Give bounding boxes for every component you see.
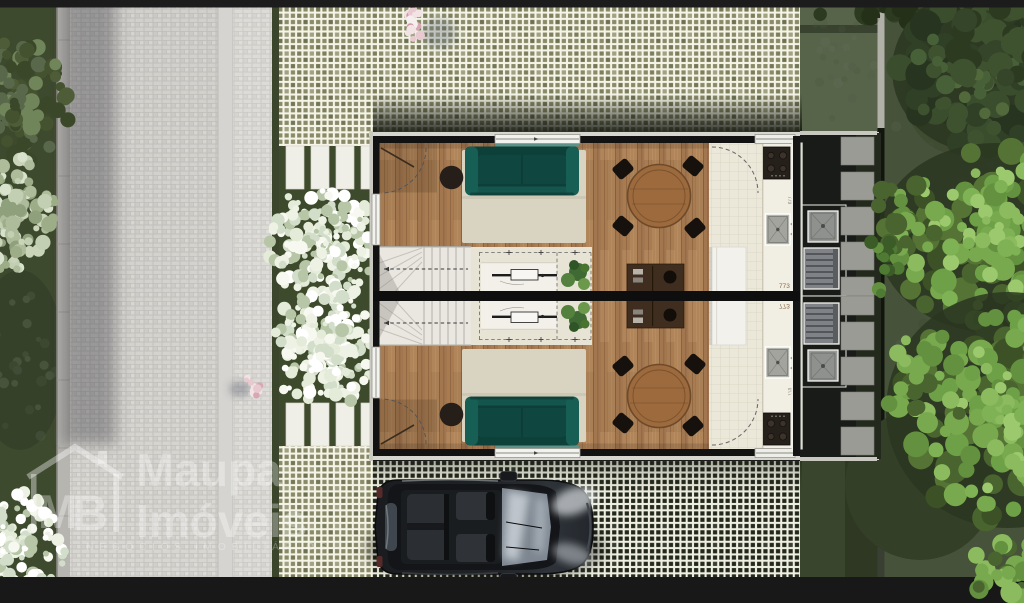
svg-text:B: B [72,485,108,541]
svg-text:779: 779 [786,196,792,205]
svg-text:Maupa: Maupa [136,444,282,496]
svg-text:Imóveis: Imóveis [136,495,307,547]
svg-text:NEGÓCIOS IMOBILIÁRIOS: NEGÓCIOS IMOBILIÁRIOS [86,540,332,553]
svg-text:773: 773 [779,283,790,290]
